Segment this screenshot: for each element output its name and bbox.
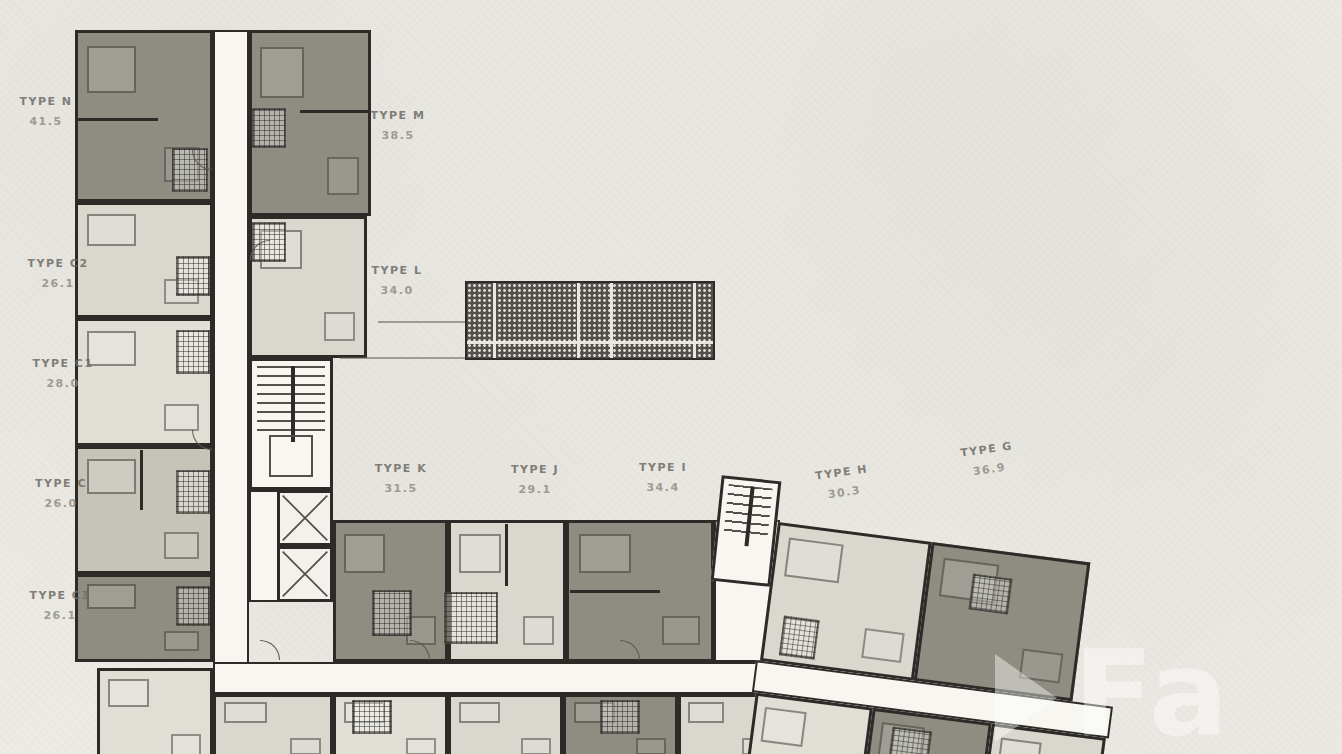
unit-area-value: 30.3 [801,481,888,504]
bathroom-tile [888,726,932,754]
bathroom-tile [176,586,210,626]
unit-area-value: 38.5 [355,130,441,141]
unit-area-value: 31.5 [358,483,444,494]
bathroom-tile [176,330,210,374]
trellis-divider [610,283,613,358]
unit-type-name: TYPE C3 [17,590,103,601]
bathroom-tile [372,590,412,636]
stair-rail [291,366,295,442]
unit-area-value: 36.9 [946,458,1033,481]
unit-label-type-m: TYPE M 38.5 [355,110,441,141]
unit-label-type-h: TYPE H 30.3 [798,461,887,504]
unit-label-type-l: TYPE L 34.0 [354,265,440,296]
unit-type-name: TYPE H [798,461,885,484]
unit-type-name: TYPE J [492,464,578,475]
door-arc [260,640,280,660]
unit-label-type-g: TYPE G 36.9 [943,438,1032,481]
unit-type-name: TYPE M [355,110,441,121]
unit-lower-3 [448,694,563,754]
unit-area-value: 34.4 [620,482,706,493]
trellis-hatched-panel [465,281,715,360]
corridor-horizontal [213,662,780,694]
stair-landing [269,435,313,477]
unit-lower-left-end [97,668,213,754]
trellis-divider [693,283,696,358]
unit-area-value: 26.1 [17,610,103,621]
angled-right-wing [739,522,1184,754]
elevator-x-icon [280,549,330,599]
bathroom-tile [600,700,640,734]
unit-type-name: TYPE G [943,438,1030,461]
bathroom-tile [252,108,286,148]
unit-area-value: 29.1 [492,484,578,495]
leader-line-lower [340,357,465,359]
unit-label-type-c3: TYPE C3 26.1 [17,590,103,621]
unit-type-name: TYPE L [354,265,440,276]
bathroom-tile [968,574,1012,615]
unit-type-name: TYPE N [3,96,89,107]
corridor-vertical [213,30,249,694]
unit-type-name: TYPE C2 [15,258,101,269]
unit-label-type-c1: TYPE C1 28.0 [20,358,106,389]
elevator-lobby [249,490,279,602]
partition-wall [570,590,660,593]
trellis-divider-horizontal [467,341,713,344]
unit-area-value: 34.0 [354,285,440,296]
unit-lower-1 [213,694,333,754]
unit-type-g [914,542,1091,701]
unit-area-value: 26.1 [15,278,101,289]
unit-type-h [760,522,932,681]
elevator-shaft-2 [277,546,333,602]
elevator-shaft-1 [277,490,333,546]
unit-area-value: 26.0 [18,498,104,509]
elevator-x-icon [280,493,330,543]
floor-plan-canvas: TYPE N 41.5 TYPE M 38.5 TYPE C2 26.1 TYP… [0,0,1342,754]
bathroom-tile [779,616,820,660]
unit-label-type-c2: TYPE C2 26.1 [15,258,101,289]
partition-wall [505,524,508,586]
unit-area-value: 41.5 [3,116,89,127]
unit-area-value: 28.0 [20,378,106,389]
unit-label-type-j: TYPE J 29.1 [492,464,578,495]
bathroom-tile [444,592,498,644]
trellis-divider [493,283,496,358]
bathroom-tile [352,700,392,734]
stairwell-main [249,358,333,490]
trellis-divider [577,283,580,358]
partition-wall [78,118,158,121]
unit-type-name: TYPE C1 [20,358,106,369]
leader-line-upper [378,321,465,323]
unit-label-type-k: TYPE K 31.5 [358,463,444,494]
unit-label-type-i: TYPE I 34.4 [620,462,706,493]
partition-wall [140,450,143,510]
bathroom-tile [176,256,210,296]
unit-type-name: TYPE C [18,478,104,489]
unit-type-name: TYPE I [620,462,706,473]
unit-label-type-c: TYPE C 26.0 [18,478,104,509]
unit-type-name: TYPE K [358,463,444,474]
unit-label-type-n: TYPE N 41.5 [3,96,89,127]
bathroom-tile [176,470,210,514]
